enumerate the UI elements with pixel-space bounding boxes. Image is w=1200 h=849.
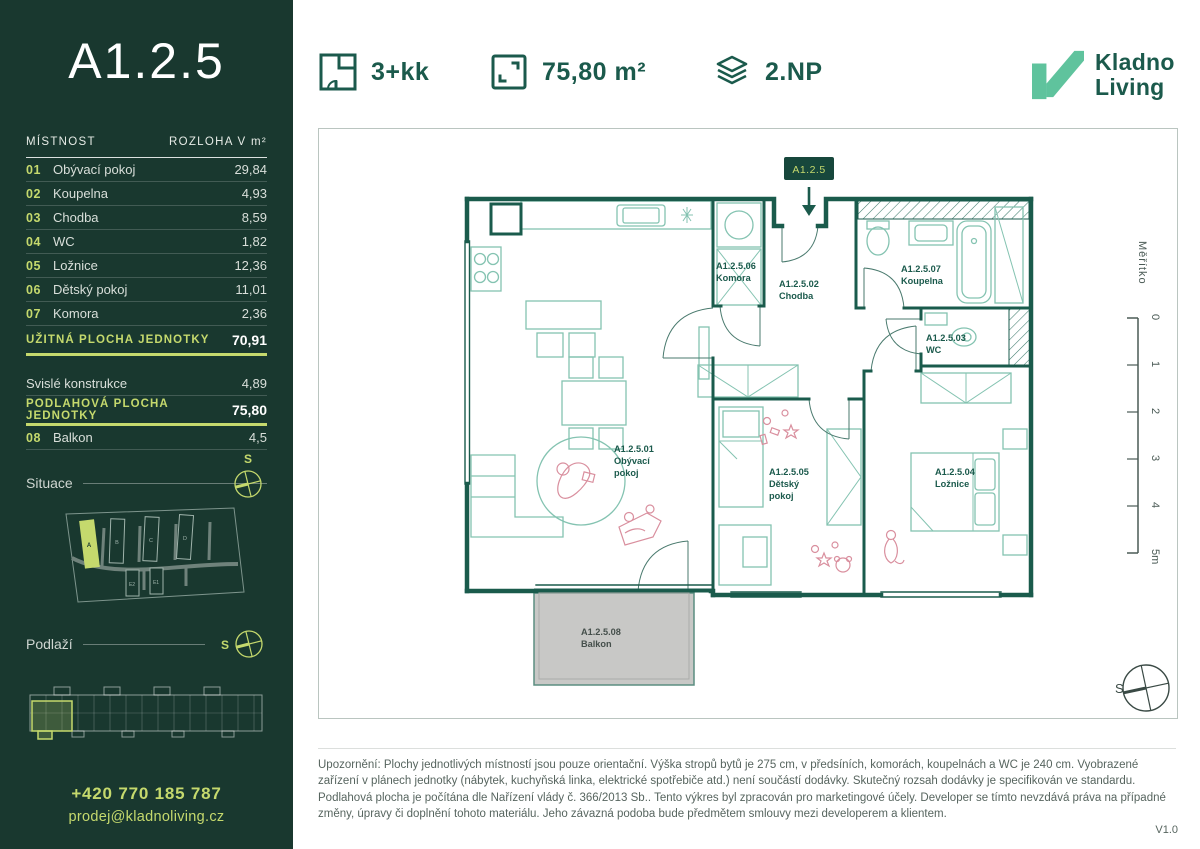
footer-divider — [318, 748, 1176, 749]
room-number: 02 — [26, 187, 53, 201]
scale-label: Měřítko — [1136, 241, 1148, 285]
site-map-svg: A B C D E2 E1 — [42, 504, 252, 606]
room-area: 11,01 — [235, 282, 267, 297]
page: A1.2.5 MÍSTNOST ROZLOHA V m² 01 Obývací … — [0, 0, 1200, 849]
floor-value: 2.NP — [765, 58, 823, 87]
kladno-living-logo-icon — [1032, 50, 1084, 100]
installation-shaft — [858, 201, 1029, 219]
room-label-code: A1.2.5.01 — [614, 444, 654, 454]
building-label: D — [183, 536, 187, 542]
room-table: MÍSTNOST ROZLOHA V m² 01 Obývací pokoj 2… — [26, 136, 267, 450]
building-label: B — [115, 540, 119, 546]
room-label-code: A1.2.5.03 — [926, 333, 966, 343]
spec-layout: 3+kk — [318, 50, 429, 94]
floor-overview-svg — [24, 667, 270, 755]
scale-tick: 5m — [1149, 549, 1161, 564]
brand-name: Kladno Living — [1095, 50, 1175, 100]
situace-label: Situace — [26, 475, 73, 491]
vertical-structures-value: 4,89 — [242, 376, 267, 391]
col-area: ROZLOHA V m² — [169, 136, 267, 148]
room-number: 07 — [26, 307, 53, 321]
room-label-name: pokoj — [614, 468, 639, 478]
floor-area-value: 75,80 — [232, 402, 267, 418]
situace-header: Situace S — [26, 468, 267, 498]
table-row: 07 Komora 2,36 — [26, 302, 267, 326]
north-compass-icon: S — [213, 628, 267, 660]
floor-overview — [24, 667, 270, 760]
room-label-name: Ložnice — [935, 479, 969, 489]
vertical-structures-label: Svislé konstrukce — [26, 376, 242, 391]
table-row: 03 Chodba 8,59 — [26, 206, 267, 230]
balcony — [534, 593, 694, 685]
scale-tick: 3 — [1149, 455, 1161, 461]
scale-tick: 2 — [1149, 408, 1161, 414]
sidebar: A1.2.5 MÍSTNOST ROZLOHA V m² 01 Obývací … — [0, 0, 293, 849]
room-name: Koupelna — [53, 186, 242, 201]
scale-ruler: Měřítko 0 1 2 3 4 5m — [1127, 241, 1161, 564]
north-compass-icon: S — [225, 452, 271, 504]
floor-plan-svg: A1.2.5 — [319, 129, 1179, 720]
room-number: 06 — [26, 283, 53, 297]
building-label: E2 — [128, 582, 134, 588]
room-label-code: A1.2.5.04 — [935, 467, 976, 477]
floorplan-icon — [318, 52, 358, 92]
table-header: MÍSTNOST ROZLOHA V m² — [26, 136, 267, 158]
room-label-name: Koupelna — [901, 276, 944, 286]
spec-floor: 2.NP — [712, 50, 823, 94]
brand-line2: Living — [1095, 75, 1175, 100]
email-link[interactable]: prodej@kladnoliving.cz — [0, 809, 293, 825]
vertical-structures-row: Svislé konstrukce 4,89 — [26, 372, 267, 396]
room-number: 05 — [26, 259, 53, 273]
room-number: 03 — [26, 211, 53, 225]
unit-title: A1.2.5 — [0, 36, 293, 86]
table-row: 01 Obývací pokoj 29,84 — [26, 158, 267, 182]
building-label: E1 — [152, 580, 158, 586]
podlazi-header: Podlaží S — [26, 629, 267, 659]
room-name: Chodba — [53, 210, 242, 225]
balcony-row: 08 Balkon 4,5 — [26, 426, 267, 450]
room-area: 4,5 — [249, 430, 267, 445]
room-label-code: A1.2.5.02 — [779, 279, 819, 289]
room-label-name: Dětský — [769, 479, 800, 489]
usable-area-label: UŽITNÁ PLOCHA JEDNOTKY — [26, 334, 232, 346]
room-area: 1,82 — [242, 234, 267, 249]
version-label: V1.0 — [1100, 824, 1178, 836]
room-label-name: pokoj — [769, 491, 794, 501]
room-label-name: Chodba — [779, 291, 814, 301]
phone-link[interactable]: +420 770 185 787 — [0, 784, 293, 804]
disclaimer-text: Upozornění: Plochy jednotlivých místnost… — [318, 757, 1174, 822]
area-value: 75,80 m² — [542, 58, 646, 87]
brand-logo: Kladno Living — [1032, 50, 1175, 100]
room-number: 08 — [26, 431, 53, 445]
floor-area-row: PODLAHOVÁ PLOCHA JEDNOTKY 75,80 — [26, 396, 267, 426]
figure-decorations — [557, 410, 904, 572]
plan-north-compass-icon: S — [1115, 661, 1173, 716]
area-icon — [489, 52, 529, 92]
table-row: 04 WC 1,82 — [26, 230, 267, 254]
room-area: 2,36 — [242, 306, 267, 321]
room-label-code: A1.2.5.06 — [716, 261, 756, 271]
floor-area-label: PODLAHOVÁ PLOCHA JEDNOTKY — [26, 398, 232, 422]
podlazi-label: Podlaží — [26, 636, 73, 652]
furniture-layer — [471, 201, 1027, 585]
entrance-arrow-icon — [802, 187, 816, 216]
plan-unit-badge-text: A1.2.5 — [792, 164, 825, 176]
table-row: 06 Dětský pokoj 11,01 — [26, 278, 267, 302]
layers-icon — [712, 52, 752, 92]
room-name: Ložnice — [53, 258, 234, 273]
room-area: 4,93 — [242, 186, 267, 201]
compass-letter: S — [221, 638, 229, 652]
scale-tick: 4 — [1149, 502, 1161, 508]
highlighted-unit — [32, 701, 72, 731]
table-row: 02 Koupelna 4,93 — [26, 182, 267, 206]
room-name: Balkon — [53, 430, 249, 445]
brand-line1: Kladno — [1095, 50, 1175, 75]
room-number: 01 — [26, 163, 53, 177]
room-area: 8,59 — [242, 210, 267, 225]
room-name: WC — [53, 234, 242, 249]
room-label-name: Komora — [716, 273, 752, 283]
scale-tick: 0 — [1149, 314, 1161, 320]
room-number: 04 — [26, 235, 53, 249]
installation-shaft — [1009, 308, 1031, 366]
site-map: A B C D E2 E1 — [42, 504, 252, 611]
building-label: C — [149, 538, 153, 544]
room-label-name: WC — [926, 345, 942, 355]
divider — [83, 644, 205, 645]
floor-plan-panel: A1.2.5 — [318, 128, 1178, 719]
building-label: A — [86, 543, 91, 549]
spec-area: 75,80 m² — [489, 50, 646, 94]
scale-tick: 1 — [1149, 361, 1161, 367]
usable-area-row: UŽITNÁ PLOCHA JEDNOTKY 70,91 — [26, 326, 267, 356]
room-area: 12,36 — [234, 258, 267, 273]
room-name: Obývací pokoj — [53, 162, 234, 177]
usable-area-value: 70,91 — [232, 332, 267, 348]
room-label-code: A1.2.5.07 — [901, 264, 941, 274]
col-room: MÍSTNOST — [26, 136, 96, 148]
room-label-code: A1.2.5.08 — [581, 627, 621, 637]
table-row: 05 Ložnice 12,36 — [26, 254, 267, 278]
room-area: 29,84 — [234, 162, 267, 177]
room-name: Dětský pokoj — [53, 282, 235, 297]
room-label-code: A1.2.5.05 — [769, 467, 809, 477]
layout-value: 3+kk — [371, 58, 429, 87]
room-label-name: Obývací — [614, 456, 650, 466]
room-name: Komora — [53, 306, 242, 321]
contact-block: +420 770 185 787 prodej@kladnoliving.cz … — [0, 784, 293, 849]
room-label-name: Balkon — [581, 639, 612, 649]
compass-letter: S — [244, 452, 252, 466]
